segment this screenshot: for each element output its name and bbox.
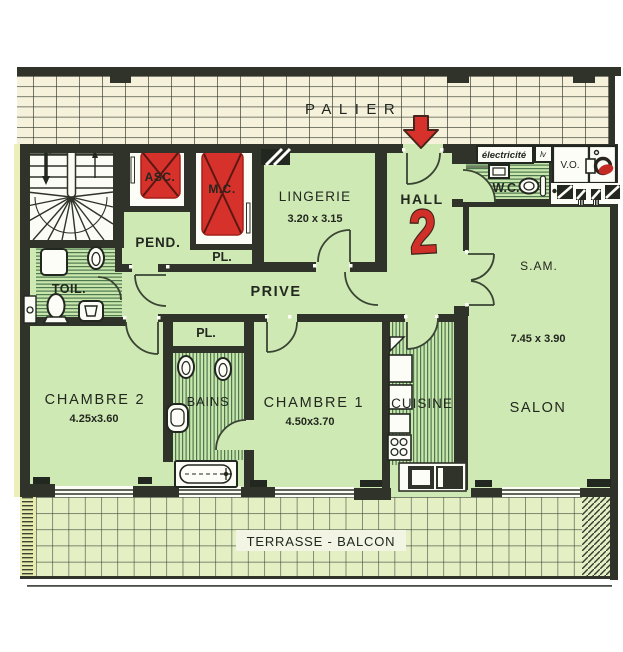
svg-text:ASC.: ASC.	[145, 170, 176, 184]
svg-text:TERRASSE - BALCON: TERRASSE - BALCON	[247, 534, 396, 549]
svg-text:S.AM.: S.AM.	[520, 259, 558, 273]
svg-text:M.C.: M.C.	[208, 182, 235, 196]
svg-text:4.50x3.70: 4.50x3.70	[286, 416, 335, 428]
svg-text:lv: lv	[540, 150, 547, 159]
svg-text:SALON: SALON	[510, 400, 567, 416]
svg-text:W.C.: W.C.	[492, 181, 519, 195]
svg-text:CUISINE: CUISINE	[391, 396, 453, 411]
svg-text:PALIER: PALIER	[305, 101, 402, 118]
svg-text:PL.: PL.	[212, 250, 231, 264]
svg-text:V.O.: V.O.	[560, 160, 579, 171]
svg-text:3.20 x 3.15: 3.20 x 3.15	[287, 213, 342, 225]
svg-text:BAINS: BAINS	[186, 394, 229, 409]
svg-text:PEND.: PEND.	[135, 235, 180, 250]
svg-text:TOIL.: TOIL.	[52, 282, 86, 296]
svg-text:CHAMBRE 1: CHAMBRE 1	[264, 395, 365, 411]
svg-text:LINGERIE: LINGERIE	[279, 189, 352, 204]
svg-text:PL.: PL.	[196, 326, 215, 340]
svg-text:7.45 x 3.90: 7.45 x 3.90	[510, 333, 565, 345]
svg-text:4.25x3.60: 4.25x3.60	[70, 413, 119, 425]
svg-text:PRIVE: PRIVE	[250, 284, 301, 300]
svg-text:2: 2	[407, 196, 438, 267]
svg-text:CHAMBRE 2: CHAMBRE 2	[45, 392, 146, 408]
svg-text:électricité: électricité	[482, 150, 527, 161]
